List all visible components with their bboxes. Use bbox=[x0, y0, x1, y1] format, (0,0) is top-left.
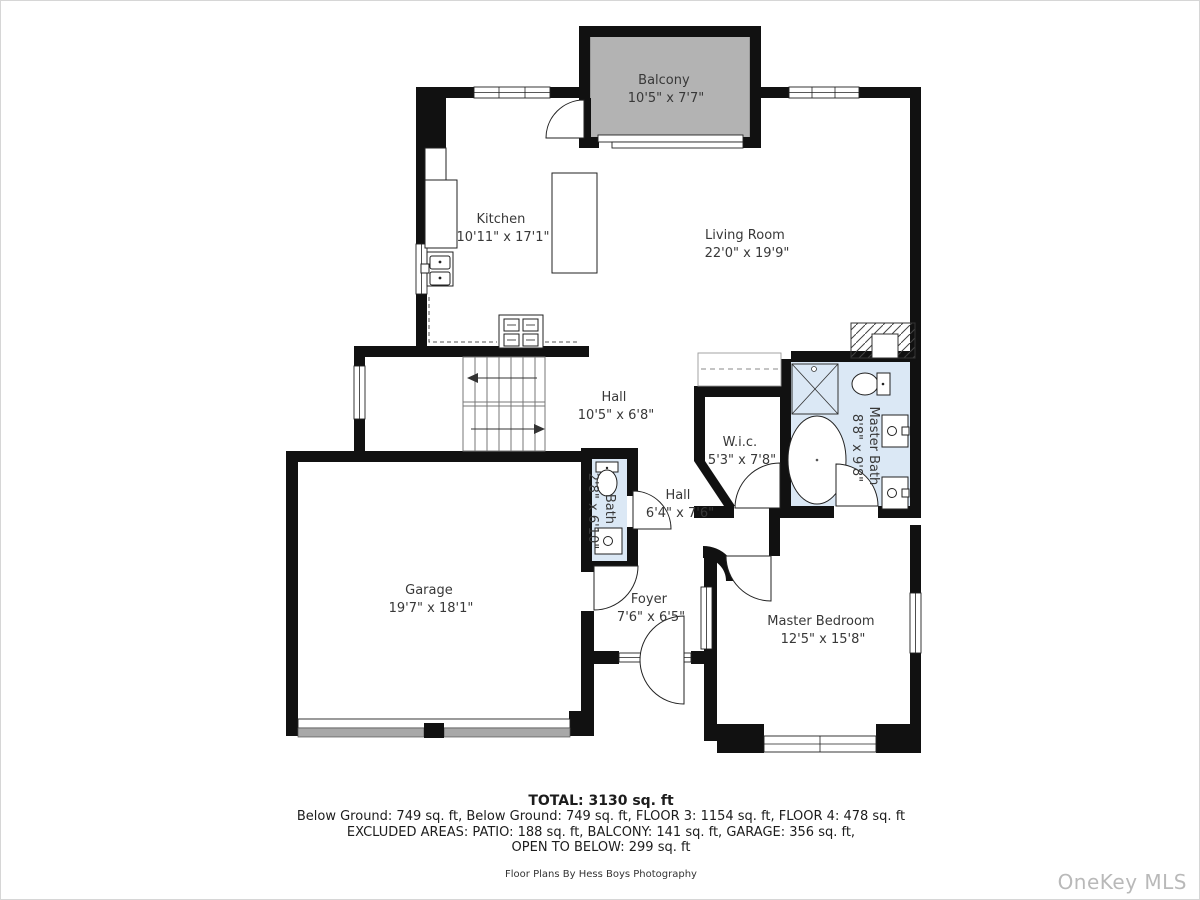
open-to-below-area: OPEN TO BELOW: 299 sq. ft bbox=[1, 840, 1200, 856]
window-top-right bbox=[789, 87, 859, 98]
window-stair-hall bbox=[354, 366, 365, 419]
window-top-left bbox=[474, 87, 550, 98]
toilet-master bbox=[852, 373, 890, 395]
staircase bbox=[463, 357, 545, 451]
excluded-areas: EXCLUDED AREAS: PATIO: 188 sq. ft, BALCO… bbox=[1, 825, 1200, 841]
balcony-sliding-door bbox=[598, 135, 743, 148]
window-bedroom-right bbox=[910, 593, 921, 653]
label-master-bedroom: Master Bedroom 12'5" x 15'8" bbox=[767, 614, 878, 647]
label-wic: W.i.c. 5'3" x 7'8" bbox=[708, 435, 776, 468]
total-area: TOTAL: 3130 sq. ft bbox=[1, 793, 1200, 809]
label-living-room: Living Room 22'0" x 19'9" bbox=[705, 228, 790, 261]
label-kitchen: Kitchen 10'11" x 17'1" bbox=[457, 212, 550, 245]
label-garage: Garage 19'7" x 18'1" bbox=[389, 583, 474, 616]
door-entry bbox=[640, 616, 684, 704]
kitchen-island bbox=[552, 173, 597, 273]
vanity-sink-2 bbox=[882, 477, 909, 509]
vanity-sink-1 bbox=[882, 415, 909, 447]
kitchen-counter bbox=[425, 148, 446, 180]
onekey-mls-watermark: OneKey MLS bbox=[1058, 870, 1187, 894]
footer-summary: TOTAL: 3130 sq. ft Below Ground: 749 sq.… bbox=[1, 793, 1200, 880]
kitchen-stove bbox=[499, 315, 543, 348]
window-foyer-sidelight bbox=[701, 587, 712, 649]
fireplace bbox=[851, 323, 915, 358]
floor-plan-drawing: Balcony 10'5" x 7'7" Kitchen 10'11" x 17… bbox=[1, 1, 1200, 781]
door-master-bedroom bbox=[726, 556, 771, 601]
credit-line: Floor Plans By Hess Boys Photography bbox=[1, 869, 1200, 880]
door-wic bbox=[735, 463, 780, 508]
floor-areas: Below Ground: 749 sq. ft, Below Ground: … bbox=[1, 809, 1200, 825]
stairs-down-arrow bbox=[534, 424, 545, 434]
door-kitchen bbox=[546, 100, 584, 138]
floor-plan-page: Balcony 10'5" x 7'7" Kitchen 10'11" x 17… bbox=[0, 0, 1200, 900]
label-hall-upper: Hall 10'5" x 6'8" bbox=[578, 390, 654, 423]
label-foyer: Foyer 7'6" x 6'5" bbox=[617, 592, 685, 625]
garage-door bbox=[298, 719, 570, 738]
kitchen-counter bbox=[425, 180, 457, 248]
stairs-up-arrow bbox=[467, 373, 478, 383]
kitchen-fixtures bbox=[421, 148, 597, 348]
open-to-below-ledge bbox=[698, 353, 781, 386]
window-bedroom-bay bbox=[764, 736, 876, 752]
